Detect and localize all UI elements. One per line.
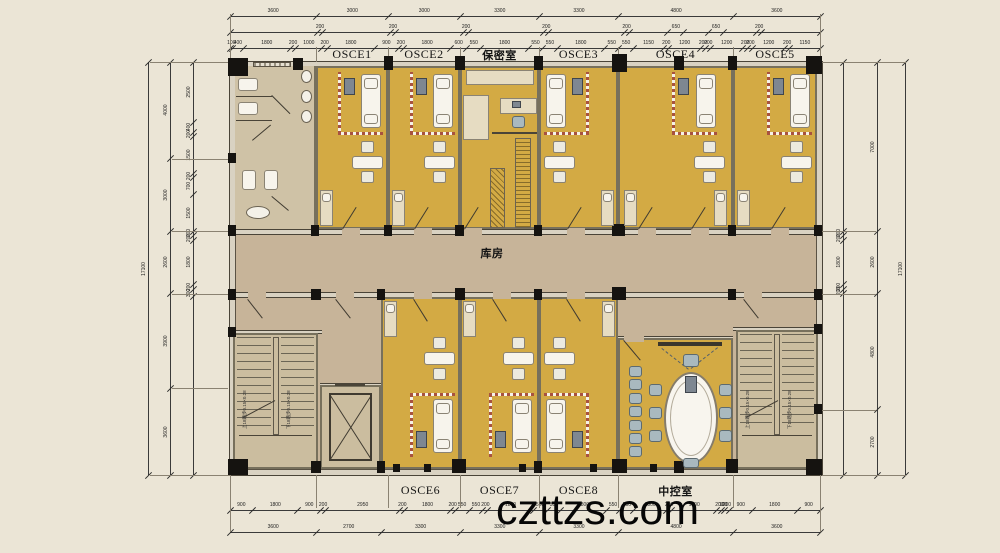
dim-top-detail-num: 600: [454, 40, 462, 46]
desk: [781, 156, 812, 169]
toilet: [238, 78, 258, 91]
urinal: [301, 110, 312, 123]
dim-left-major: [170, 62, 171, 475]
structural-column: [424, 464, 431, 472]
stair-rail: [774, 334, 780, 435]
stair-landing-line: [742, 435, 812, 436]
structural-column: [228, 225, 236, 236]
bed-foot: [793, 114, 807, 124]
bed-foot: [549, 439, 563, 449]
curtain: [410, 132, 455, 135]
door-opening: [744, 291, 762, 299]
dim-right-major-num: 7000: [870, 141, 876, 152]
curtain: [338, 72, 341, 134]
desk: [352, 156, 383, 169]
chair: [512, 337, 525, 349]
bed-foot: [549, 114, 563, 124]
urinal: [301, 70, 312, 83]
dim-top-detail-num: 1800: [575, 40, 586, 46]
curtain: [767, 132, 812, 135]
extension-line: [150, 62, 230, 63]
structural-column: [519, 464, 526, 472]
bed-pillow: [699, 78, 713, 89]
dim-top-mid-num: 200: [389, 24, 397, 30]
desk: [544, 156, 575, 169]
dim-left-detail-num: 2500: [186, 87, 192, 98]
stair-note-down: 下18踏步0.15×0.28: [286, 390, 292, 429]
chair: [790, 171, 803, 183]
chair: [512, 368, 525, 380]
shelf-unit: [466, 70, 534, 85]
dim-top-mid-num: 650: [672, 24, 680, 30]
dim-top-detail-num: 1800: [422, 40, 433, 46]
curtain: [489, 395, 492, 457]
dim-bottom-major-num: 3600: [771, 524, 782, 530]
door-opening: [638, 228, 656, 236]
structural-column: [311, 225, 319, 236]
sofa: [463, 95, 489, 140]
chair: [703, 171, 716, 183]
structural-column: [228, 289, 236, 300]
dim-left-detail-num: 300: [186, 288, 192, 296]
chair: [553, 368, 566, 380]
side-chair: [629, 446, 642, 457]
desk: [544, 352, 575, 365]
extension-line: [388, 475, 389, 508]
extension-line: [172, 159, 228, 160]
door-opening: [691, 228, 709, 236]
dim-left-major-num: 3000: [163, 189, 169, 200]
dim-top-major-num: 3000: [347, 8, 358, 14]
extension-line: [172, 294, 228, 295]
door-opening: [248, 291, 266, 299]
curtain: [410, 395, 413, 457]
dim-bottom-major-num: 3600: [268, 524, 279, 530]
extension-line: [316, 475, 317, 508]
dim-left-detail-num: 1800: [186, 257, 192, 268]
bed-pillow: [549, 78, 563, 89]
chair: [790, 141, 803, 153]
room-label-osce1: OSCE1: [332, 47, 371, 62]
dim-top-detail-num: 1800: [345, 40, 356, 46]
structural-column: [726, 459, 738, 473]
curtain: [544, 132, 589, 135]
dim-bottom-detail-num: 900: [305, 502, 313, 508]
dim-top-detail-num: 1000: [303, 40, 314, 46]
side-chair: [629, 379, 642, 390]
structural-column: [311, 289, 321, 300]
side-chair: [629, 393, 642, 404]
dim-left-total: [148, 62, 149, 475]
door-opening: [567, 228, 585, 236]
dim-bottom-detail-num: 1800: [422, 502, 433, 508]
extension-line: [820, 14, 821, 62]
bed-pillow: [436, 403, 450, 414]
structural-column: [534, 56, 543, 70]
elevator-door-line: [335, 384, 365, 386]
dim-top-detail-num: 1800: [261, 40, 272, 46]
sink-basin: [626, 193, 635, 202]
chair: [433, 337, 446, 349]
structural-column: [452, 459, 466, 473]
extension-line: [150, 475, 230, 476]
office-chair: [512, 116, 525, 128]
dim-right-total-num: 17100: [898, 262, 904, 276]
extension-line: [822, 62, 906, 63]
dim-bottom-detail-num: 900: [805, 502, 813, 508]
dim-bottom-major-num: 2700: [343, 524, 354, 530]
structural-column: [534, 225, 542, 236]
monitor-cabinet: [416, 431, 427, 448]
monitor-cabinet: [344, 78, 355, 95]
bed-pillow: [436, 78, 450, 89]
door-opening: [567, 291, 585, 299]
room-label-osce3: OSCE3: [559, 47, 598, 62]
dim-left-major-num: 3900: [163, 335, 169, 346]
window-band: [253, 62, 291, 67]
structural-column: [311, 461, 321, 473]
dim-top-detail-num: 550: [622, 40, 630, 46]
dim-right-detail-num: 1800: [836, 257, 842, 268]
bed-pillow: [364, 78, 378, 89]
structural-column: [228, 58, 248, 76]
curtain: [410, 72, 413, 134]
bed-foot: [364, 114, 378, 124]
dim-top-mid-num: 200: [462, 24, 470, 30]
stair-rail: [273, 337, 279, 435]
dim-right-major-num: 2600: [870, 257, 876, 268]
dim-top-mid-num: 200: [316, 24, 324, 30]
desk: [503, 352, 534, 365]
dim-bottom-detail-num: 200: [723, 502, 731, 508]
dim-bottom-detail-num: 1800: [270, 502, 281, 508]
chair: [553, 171, 566, 183]
conference-chair: [719, 384, 732, 396]
bed-pillow: [515, 403, 529, 414]
curtain: [544, 393, 589, 396]
structural-column: [455, 56, 465, 70]
podium: [685, 376, 697, 393]
sink-basin: [739, 193, 748, 202]
structural-column: [377, 461, 385, 473]
bed-pillow: [549, 403, 563, 414]
wash-basin: [246, 206, 270, 219]
extension-line: [316, 47, 317, 62]
dim-top-detail-num: 200: [397, 40, 405, 46]
chair: [433, 368, 446, 380]
structural-column: [814, 225, 822, 236]
structural-column: [384, 225, 392, 236]
curtain: [586, 72, 589, 134]
bed-foot: [436, 439, 450, 449]
stair-landing-line: [239, 435, 312, 436]
door-opening: [336, 291, 354, 299]
dim-top-detail-num: 550: [470, 40, 478, 46]
dim-left-major-num: 3600: [163, 426, 169, 437]
extension-line: [230, 475, 231, 532]
structural-column: [228, 459, 248, 475]
projection-screen: [658, 342, 722, 346]
curtain: [338, 132, 383, 135]
room-label-osce4: OSCE4: [656, 47, 695, 62]
structural-column: [814, 324, 822, 334]
structural-column: [455, 225, 464, 236]
extension-line: [172, 388, 228, 389]
conference-chair: [683, 354, 699, 367]
desk: [694, 156, 725, 169]
structural-column: [612, 54, 627, 72]
structural-column: [650, 464, 657, 472]
side-chair: [629, 433, 642, 444]
door-opening: [493, 291, 511, 299]
stair-note-up: 上18踏步0.15×0.28: [745, 390, 751, 429]
bed-pillow: [793, 78, 807, 89]
dim-right-major-num: 2700: [870, 437, 876, 448]
conference-chair: [683, 458, 699, 468]
dim-top-detail-num: 1200: [679, 40, 690, 46]
monitor-cabinet: [572, 78, 583, 95]
dim-top-detail-num: 550: [546, 40, 554, 46]
toilet: [238, 102, 258, 115]
structural-column: [612, 459, 627, 473]
room-label-osce6: OSCE6: [401, 483, 440, 498]
door-opening: [414, 228, 432, 236]
desk: [424, 156, 455, 169]
dim-top-major-num: 3300: [494, 8, 505, 14]
extension-line: [460, 475, 461, 508]
monitor-cabinet: [572, 431, 583, 448]
dim-bottom-detail-num: 550: [472, 502, 480, 508]
computer: [512, 101, 521, 108]
dim-bottom-detail-num: 200: [319, 502, 327, 508]
curtain: [672, 72, 675, 134]
chair: [553, 141, 566, 153]
structural-column: [814, 404, 822, 414]
dim-left-major-num: 2600: [163, 257, 169, 268]
extension-line: [822, 294, 876, 295]
dim-left-detail-num: 1500: [186, 207, 192, 218]
monitor-cabinet: [678, 78, 689, 95]
dim-left-detail-num: 700: [186, 182, 192, 190]
stall-line: [236, 120, 272, 121]
structural-column: [728, 56, 737, 70]
structural-column: [228, 153, 236, 163]
structural-column: [806, 56, 822, 74]
dim-right-total: [905, 62, 906, 475]
door-opening: [342, 228, 360, 236]
conference-chair: [719, 407, 732, 419]
monitor-cabinet: [773, 78, 784, 95]
dim-top-major-num: 3000: [419, 8, 430, 14]
dim-bottom-detail-num: 2950: [357, 502, 368, 508]
sink-basin: [603, 193, 612, 202]
structural-column: [228, 327, 236, 337]
conference-chair: [649, 430, 662, 442]
floor-plan-canvas: czttzs.com 36003000300033003300480036002…: [0, 0, 1000, 553]
dim-top-detail-num: 200: [320, 40, 328, 46]
dim-right-major: [877, 62, 878, 475]
dim-top-detail-num: 1800: [499, 40, 510, 46]
dim-bottom-detail-num: 900: [237, 502, 245, 508]
structural-column: [534, 461, 542, 473]
dim-top-detail-num: 550: [531, 40, 539, 46]
conference-chair: [719, 430, 732, 442]
side-chair: [629, 406, 642, 417]
toilet: [264, 170, 278, 190]
curtain: [767, 72, 770, 134]
dim-top-detail-num: 200: [662, 40, 670, 46]
door-opening: [624, 334, 644, 342]
extension-line: [822, 231, 876, 232]
monitor-cabinet: [495, 431, 506, 448]
sink-basin: [465, 304, 474, 313]
dim-top-detail-num: 1150: [799, 40, 810, 46]
curtain: [586, 395, 589, 457]
structural-column: [814, 289, 822, 300]
dim-bottom-detail-num: 900: [737, 502, 745, 508]
partition: [492, 132, 537, 134]
chair: [703, 141, 716, 153]
curtain: [489, 393, 534, 396]
structural-column: [590, 464, 597, 472]
dim-right-major-num: 4800: [870, 346, 876, 357]
structural-column: [728, 225, 736, 236]
dim-bottom-detail-num: 1800: [769, 502, 780, 508]
bed-foot: [699, 114, 713, 124]
sink-basin: [394, 193, 403, 202]
conference-chair: [649, 384, 662, 396]
sink-basin: [716, 193, 725, 202]
structural-column: [393, 464, 400, 472]
stall-line: [236, 96, 272, 97]
dim-bottom-detail-num: 200: [448, 502, 456, 508]
dim-top-major-num: 3300: [573, 8, 584, 14]
dim-top-detail-num: 400: [234, 40, 242, 46]
conference-chair: [649, 407, 662, 419]
sink-basin: [386, 304, 395, 313]
dim-bottom-major-num: 3300: [415, 524, 426, 530]
dim-top-detail-num: 550: [608, 40, 616, 46]
bed-foot: [436, 114, 450, 124]
dim-top-detail-num: 200: [289, 40, 297, 46]
extension-line: [822, 475, 906, 476]
monitor-cabinet: [416, 78, 427, 95]
chair: [553, 337, 566, 349]
dim-top-detail-num: 200: [783, 40, 791, 46]
stair-note-down: 下18踏步0.15×0.28: [787, 390, 793, 429]
chair: [433, 141, 446, 153]
sink-basin: [322, 193, 331, 202]
door-opening: [771, 228, 789, 236]
extension-line: [172, 231, 228, 232]
dim-left-total-num: 17100: [141, 262, 147, 276]
stair-note-up: 上18踏步0.15×0.28: [242, 390, 248, 429]
sink-basin: [604, 304, 613, 313]
dim-top-detail-num: 1150: [643, 40, 654, 46]
dim-left-major-num: 4000: [163, 105, 169, 116]
structural-column: [728, 289, 736, 300]
room-label-cn: 保密室: [482, 47, 517, 63]
extension-line: [822, 410, 876, 411]
structural-column: [806, 459, 822, 475]
bed-foot: [515, 439, 529, 449]
dim-top-major-num: 3600: [268, 8, 279, 14]
urinal: [301, 90, 312, 103]
dim-top-mid-num: 200: [755, 24, 763, 30]
extension-line: [230, 14, 231, 62]
dim-top-major-num: 3600: [771, 8, 782, 14]
extension-line: [820, 475, 821, 532]
dim-top-detail-num: 900: [382, 40, 390, 46]
room-label-osce2: OSCE2: [404, 47, 443, 62]
structural-column: [612, 287, 626, 300]
curtain: [410, 393, 455, 396]
dim-top-mid-num: 200: [542, 24, 550, 30]
watermark: czttzs.com: [496, 486, 699, 535]
storage-rack: [515, 138, 531, 228]
extension-line: [733, 475, 734, 508]
chair: [433, 171, 446, 183]
door-opening: [464, 228, 482, 236]
structural-column: [384, 56, 393, 70]
storage-rack: [490, 168, 505, 228]
dim-top-detail-num: 1200: [721, 40, 732, 46]
dim-left-detail: [193, 62, 194, 475]
side-chair: [629, 366, 642, 377]
dim-top-mid-num: 650: [712, 24, 720, 30]
curtain: [672, 132, 717, 135]
door-opening: [414, 291, 432, 299]
dim-right-detail: [843, 62, 844, 475]
room-label-osce5: OSCE5: [755, 47, 794, 62]
desk: [424, 352, 455, 365]
structural-column: [377, 289, 385, 300]
toilet: [242, 170, 256, 190]
dim-top-mid-num: 200: [622, 24, 630, 30]
structural-column: [534, 289, 542, 300]
chair: [361, 171, 374, 183]
dim-top-major-num: 4800: [671, 8, 682, 14]
structural-column: [293, 58, 303, 70]
structural-column: [455, 288, 465, 300]
side-chair: [629, 420, 642, 431]
room-label-corridor: 库房: [481, 245, 504, 261]
chair: [361, 141, 374, 153]
dim-top-detail-num: 1200: [763, 40, 774, 46]
